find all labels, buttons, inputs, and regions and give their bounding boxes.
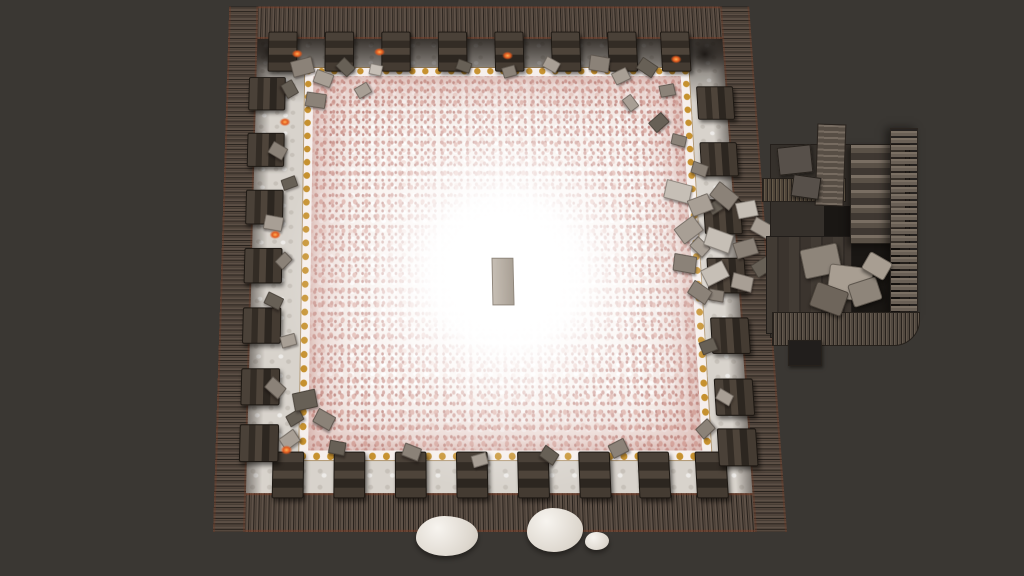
pillar-capital-east [696, 86, 735, 119]
pillar-capital-south [333, 452, 365, 499]
pillar-capital-west [242, 307, 281, 343]
main-square-room [213, 6, 787, 532]
ember-glow [292, 50, 303, 58]
ember-glow [670, 55, 681, 63]
annex-stone-block [791, 174, 822, 200]
pillar-capital-north [381, 32, 410, 72]
ember-glow [269, 230, 281, 239]
rubble-block [328, 440, 347, 457]
ember-glow [280, 445, 292, 455]
white-boulder [527, 508, 583, 552]
pillar-capital-south [578, 452, 611, 499]
rubble-block [263, 214, 284, 232]
pillar-capital-north [607, 32, 638, 72]
rubble-block [588, 54, 610, 73]
south-wall [213, 493, 787, 532]
pillar-capital-west [248, 77, 286, 110]
altar-pedestal[interactable] [492, 258, 515, 306]
annex-east-wall [890, 128, 918, 315]
game-viewport[interactable] [0, 0, 1024, 576]
ember-glow [374, 48, 385, 56]
pillar-capital-east [717, 428, 759, 466]
rubble-block [305, 91, 327, 109]
ember-glow [279, 118, 290, 126]
ember-glow [502, 52, 513, 60]
annex-stone-block [777, 144, 814, 175]
pillar-capital-south [637, 452, 671, 499]
white-boulder [585, 532, 609, 550]
white-boulder [416, 516, 478, 556]
annex-room [762, 118, 930, 368]
annex-wall-slab [815, 124, 847, 207]
rubble-block [368, 63, 383, 76]
pillar-capital-west [239, 424, 279, 462]
annex-shadow-block [788, 340, 822, 366]
pillar-capital-west [244, 248, 283, 284]
main-room-perspective [213, 0, 787, 532]
pillar-capital-north [660, 32, 692, 72]
